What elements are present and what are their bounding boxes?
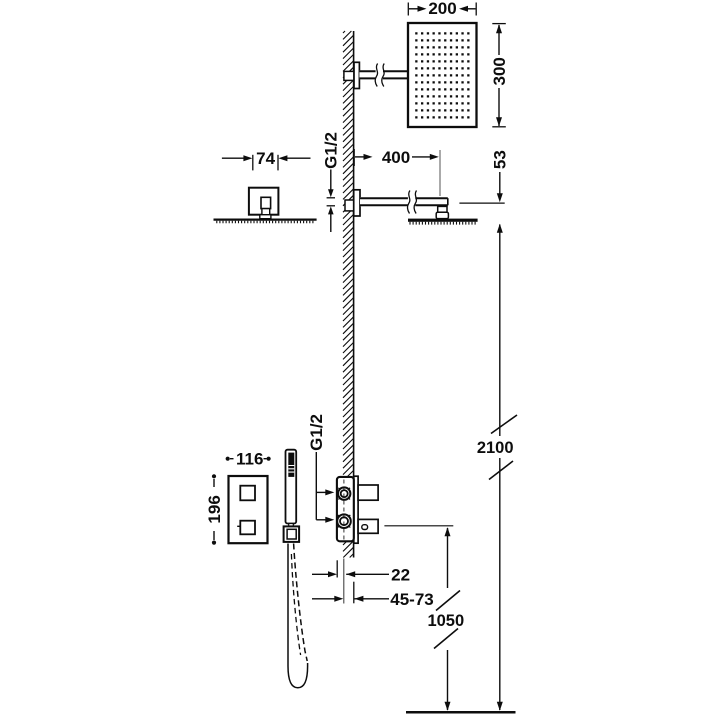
svg-text:116: 116 <box>236 450 263 469</box>
svg-text:2100: 2100 <box>477 439 514 457</box>
svg-text:G1/2: G1/2 <box>321 132 340 169</box>
svg-text:G1/2: G1/2 <box>307 414 326 451</box>
svg-text:1050: 1050 <box>427 612 464 630</box>
svg-text:45-73: 45-73 <box>390 590 433 609</box>
svg-text:200: 200 <box>428 0 456 18</box>
svg-text:22: 22 <box>391 565 410 584</box>
svg-text:400: 400 <box>382 148 410 167</box>
svg-text:74: 74 <box>256 149 275 168</box>
svg-text:300: 300 <box>490 57 509 85</box>
svg-text:53: 53 <box>491 150 510 169</box>
svg-text:196: 196 <box>205 495 224 523</box>
